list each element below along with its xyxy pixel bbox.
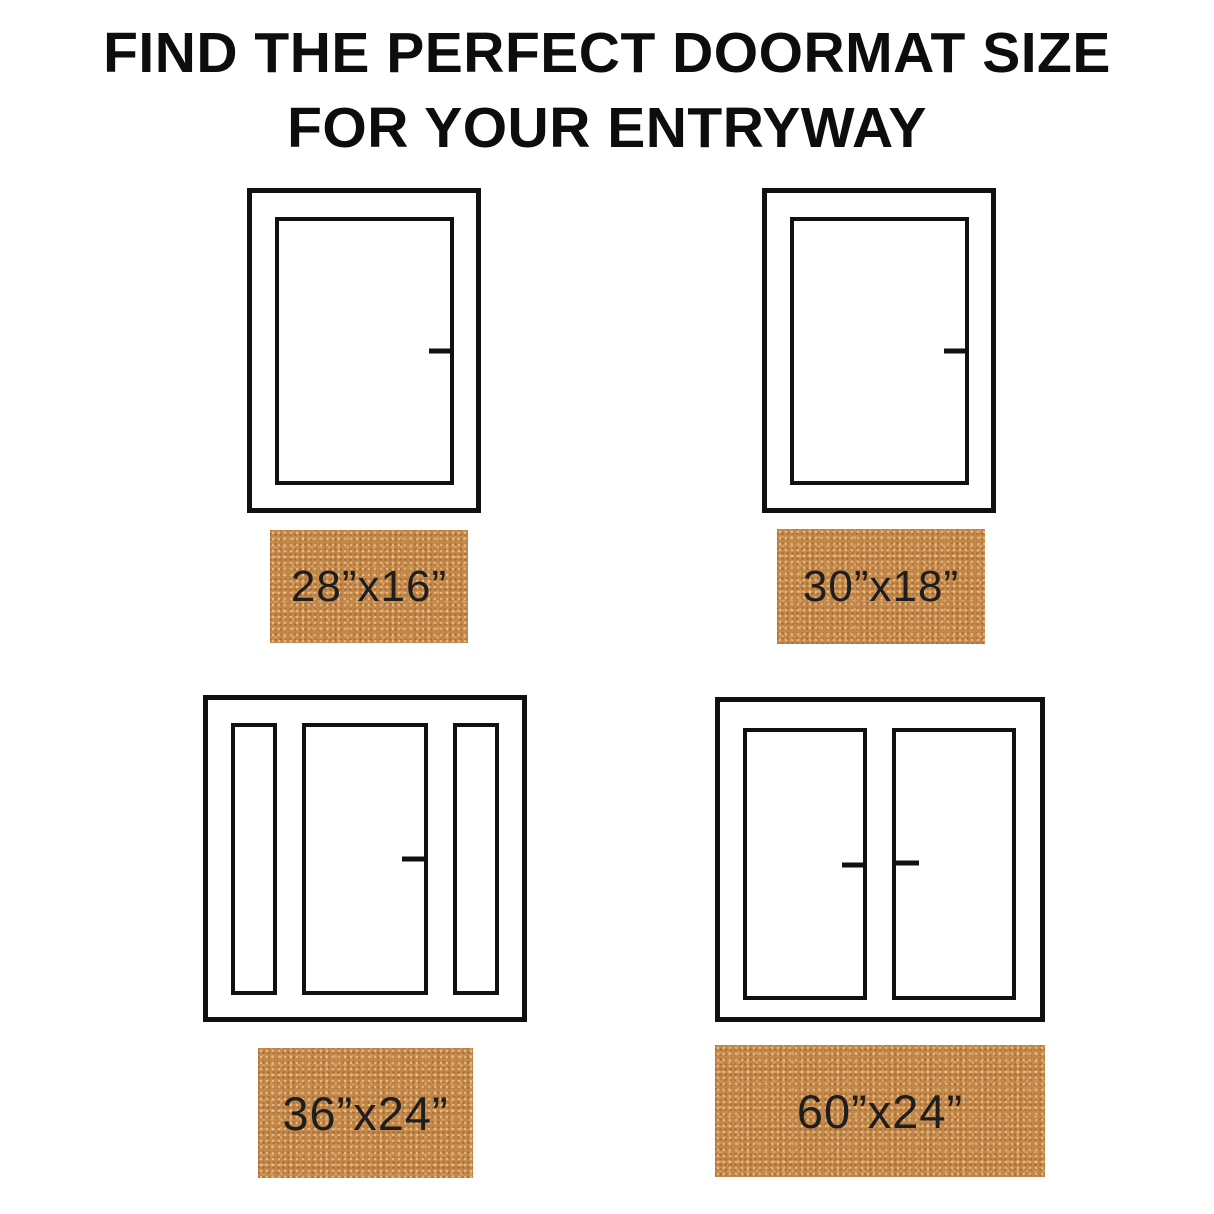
page-title-line-2: FOR YOUR ENTRYWAY <box>0 91 1214 166</box>
doormat-size-infographic: FIND THE PERFECT DOORMAT SIZE FOR YOUR E… <box>0 0 1214 1214</box>
single-door-diagram-2 <box>762 188 996 513</box>
door-panel <box>790 217 969 485</box>
door-panel <box>275 217 454 485</box>
doormat-size-label: 36”x24” <box>282 1086 448 1141</box>
door-handle-icon <box>429 349 451 354</box>
single-door-diagram-1 <box>247 188 481 513</box>
door-handle-icon <box>944 349 966 354</box>
door-panel-right <box>892 728 1016 1000</box>
door-with-sidelights-diagram <box>203 695 527 1022</box>
doormat-36x24: 36”x24” <box>258 1048 473 1178</box>
door-handle-icon <box>895 861 919 866</box>
doormat-size-label: 60”x24” <box>797 1084 963 1139</box>
doormat-size-label: 30”x18” <box>803 562 959 612</box>
page-title: FIND THE PERFECT DOORMAT SIZE FOR YOUR E… <box>0 0 1214 166</box>
page-title-line-1: FIND THE PERFECT DOORMAT SIZE <box>0 16 1214 91</box>
door-panel <box>302 723 428 995</box>
door-handle-icon <box>402 857 425 862</box>
sidelight-right <box>453 723 499 995</box>
doormat-30x18: 30”x18” <box>777 529 985 644</box>
double-door-diagram <box>715 697 1045 1022</box>
doormat-60x24: 60”x24” <box>715 1045 1045 1177</box>
door-handle-icon <box>842 863 864 868</box>
sidelight-left <box>231 723 277 995</box>
doormat-28x16: 28”x16” <box>270 530 468 643</box>
doormat-size-label: 28”x16” <box>291 562 447 612</box>
door-panel-left <box>743 728 867 1000</box>
